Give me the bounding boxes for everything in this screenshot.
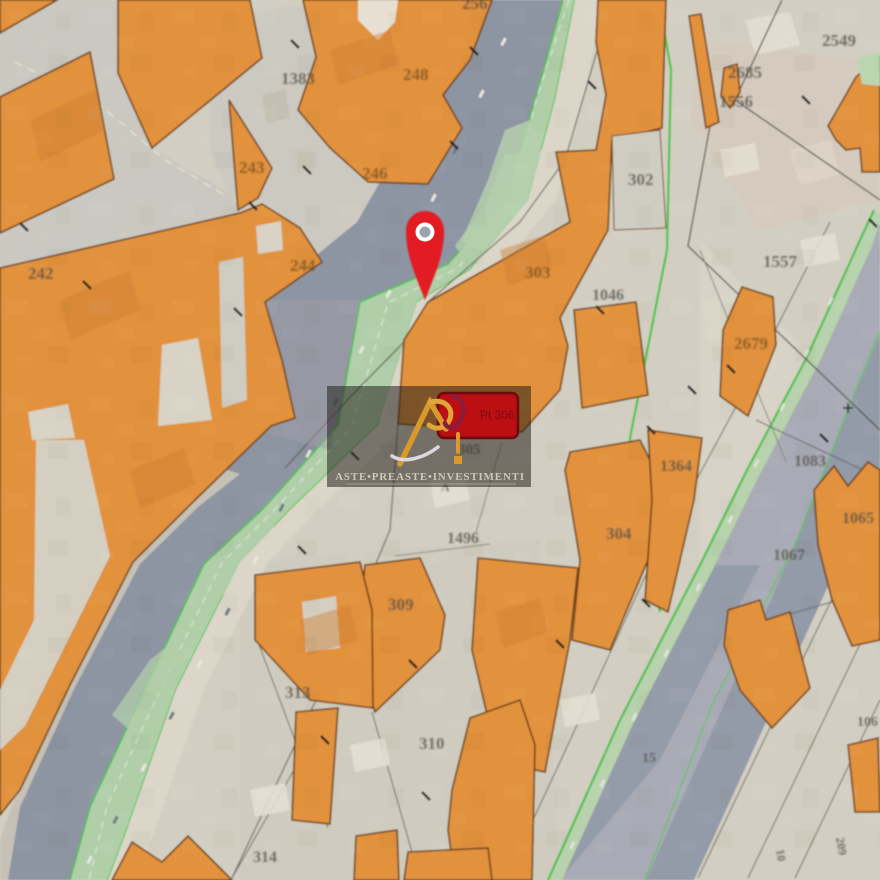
svg-text:Pt 306: Pt 306 xyxy=(480,408,515,422)
svg-text:ASTE•PREASTE•INVESTIMENTI: ASTE•PREASTE•INVESTIMENTI xyxy=(335,471,525,483)
